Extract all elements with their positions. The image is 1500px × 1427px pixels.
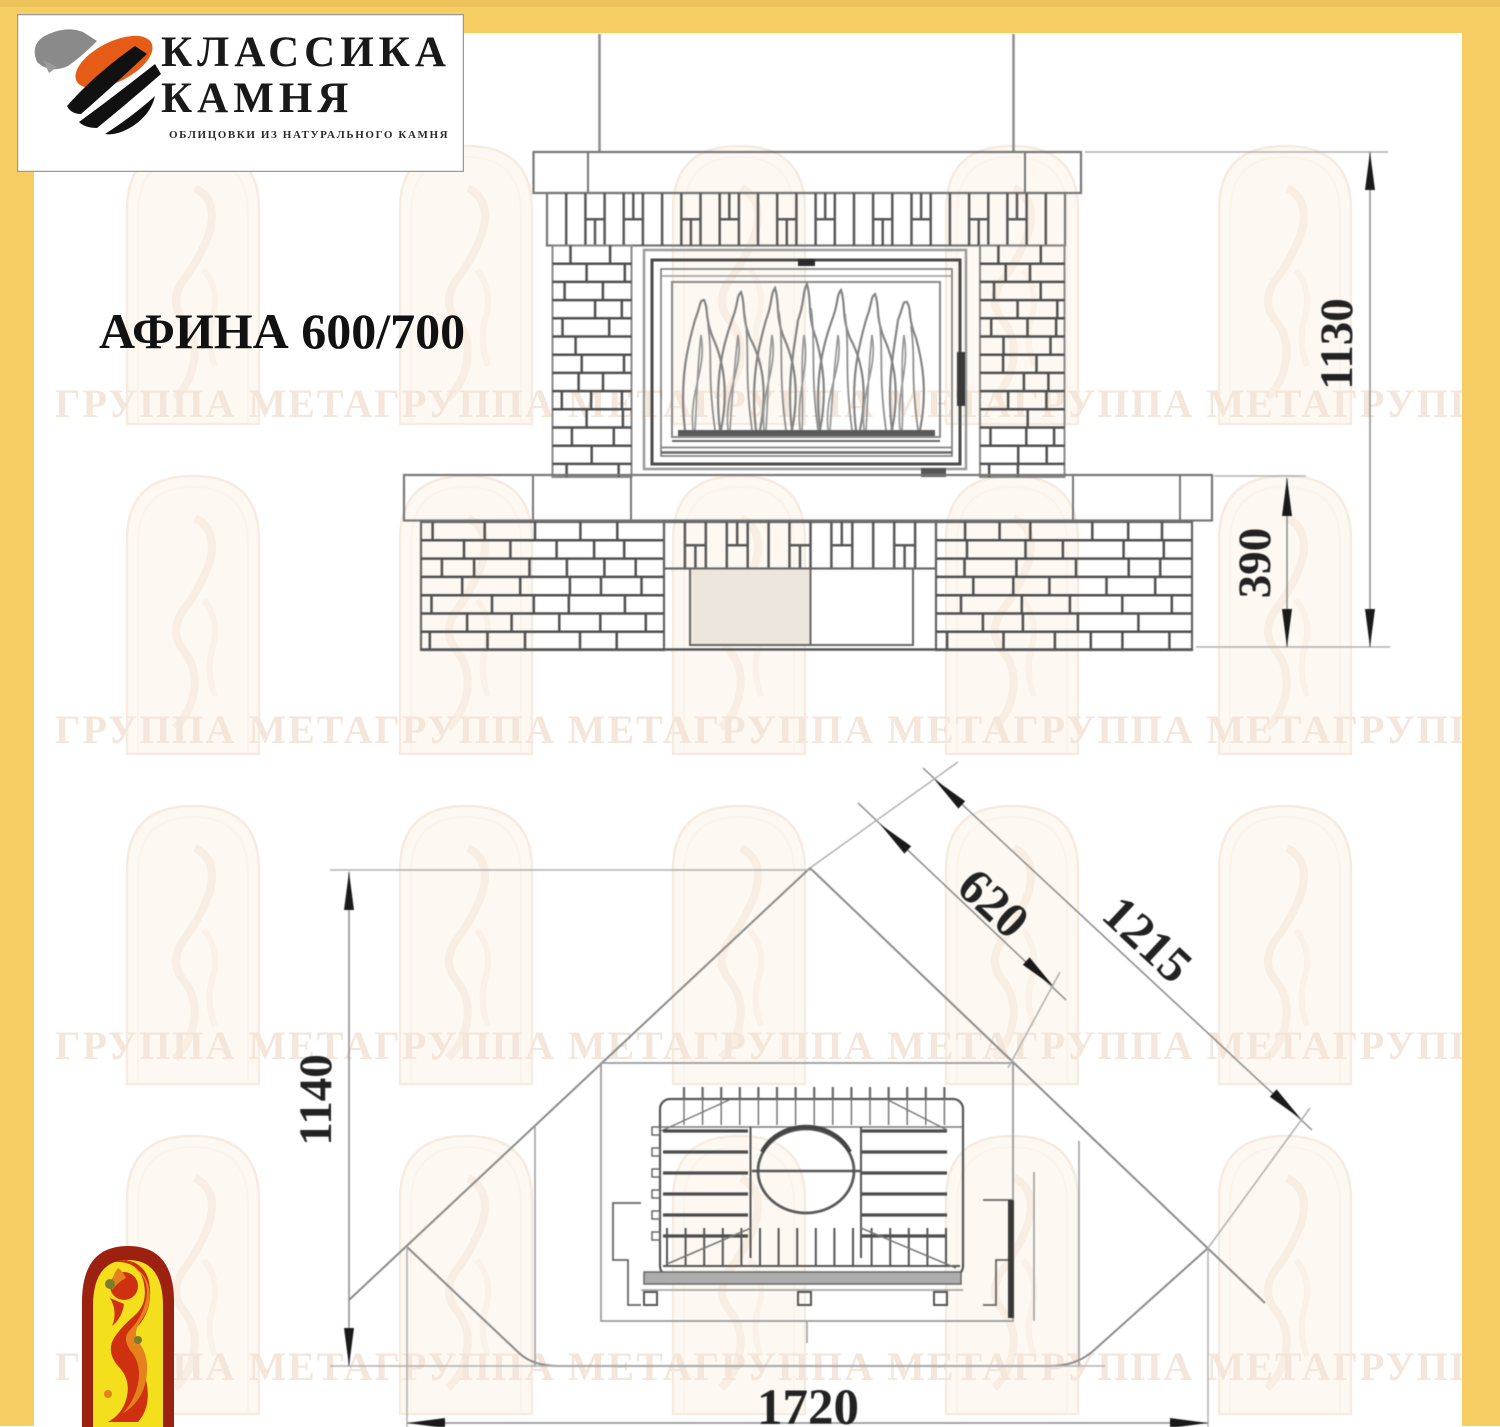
svg-text:1215: 1215 [1092,884,1203,993]
svg-text:1130: 1130 [1311,298,1363,389]
svg-text:1720: 1720 [757,1380,859,1427]
svg-text:620: 620 [947,857,1040,949]
svg-text:390: 390 [1229,528,1281,599]
svg-text:1140: 1140 [290,1054,342,1145]
